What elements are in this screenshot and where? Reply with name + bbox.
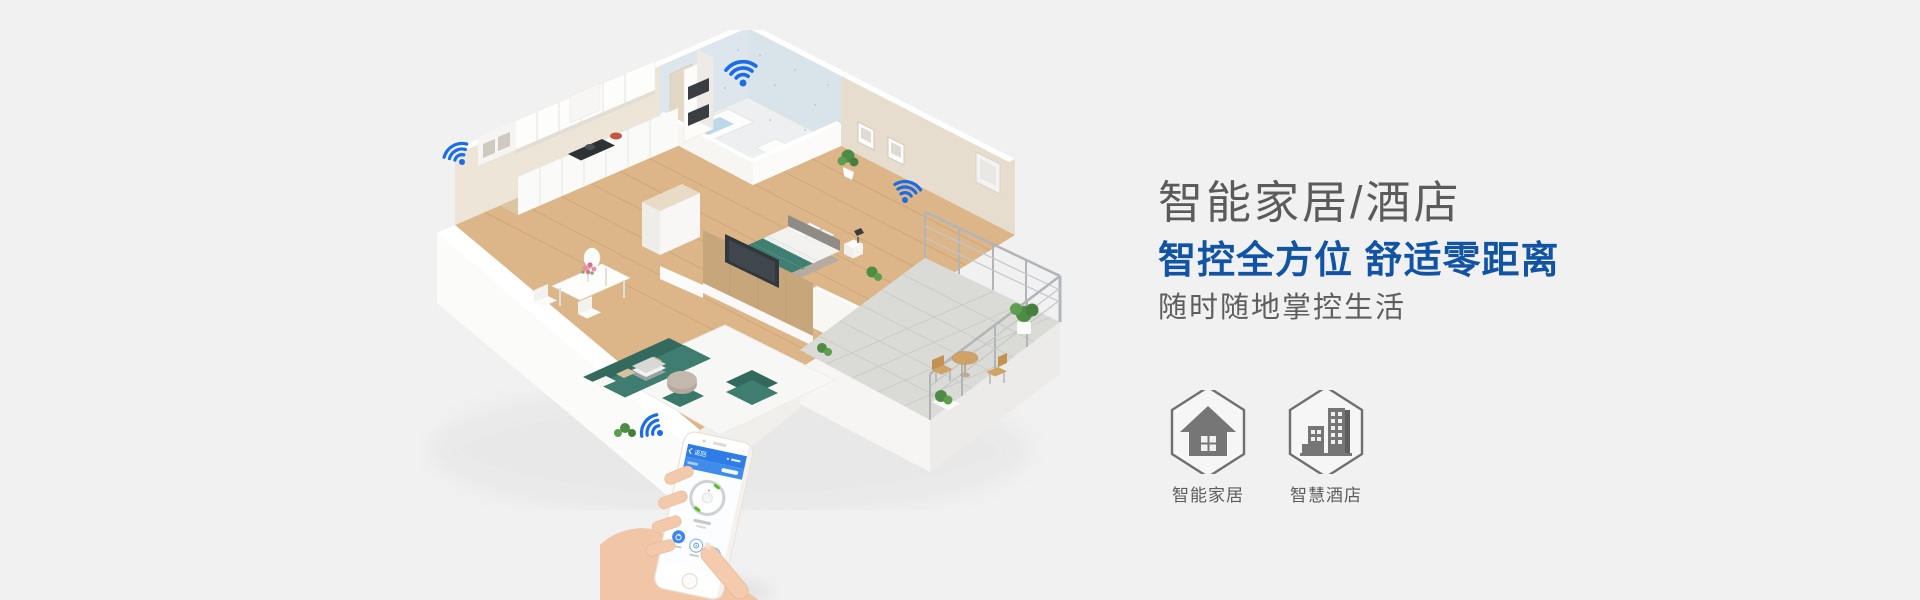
food-bowl xyxy=(610,133,622,140)
badge-smart-hotel[interactable]: 智慧酒店 xyxy=(1278,390,1374,506)
hexagon-outline xyxy=(1290,390,1362,474)
smartphone: 返回 xyxy=(653,430,755,600)
category-badges: 智能家居 xyxy=(1160,390,1374,506)
pouf xyxy=(667,371,697,389)
hand-with-phone: 返回 xyxy=(600,420,960,600)
hero-banner: 返回 xyxy=(0,0,1920,600)
planter xyxy=(1017,322,1031,334)
hexagon-smart-hotel xyxy=(1278,390,1374,474)
bistro-table xyxy=(952,352,978,365)
hexagon-smart-home xyxy=(1160,390,1256,474)
hero-subtitle: 智控全方位 舒适零距离 xyxy=(1158,242,1560,280)
badge-label: 智能家居 xyxy=(1172,481,1244,506)
page-title: 智能家居/酒店 xyxy=(1158,180,1462,225)
badge-label: 智慧酒店 xyxy=(1290,481,1362,506)
hero-tagline: 随时随地掌控生活 xyxy=(1158,294,1406,323)
badge-smart-home[interactable]: 智能家居 xyxy=(1160,390,1256,506)
